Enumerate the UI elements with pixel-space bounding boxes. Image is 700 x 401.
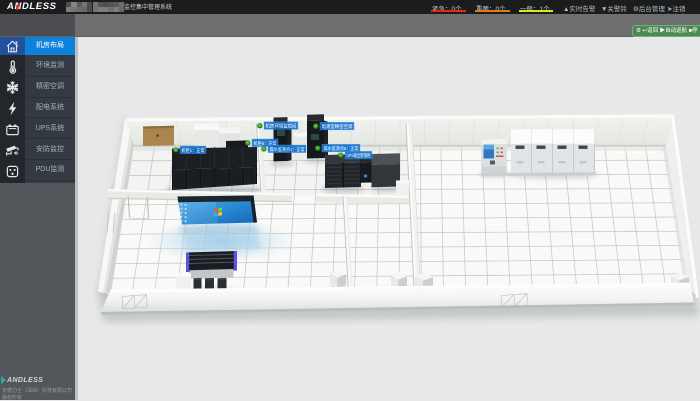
svg-text:UPS输出配电柜: UPS输出配电柜 bbox=[347, 152, 371, 159]
svg-text:机柜1：正常: 机柜1：正常 bbox=[182, 147, 205, 154]
svg-text:漏水监测点1：正常: 漏水监测点1：正常 bbox=[270, 146, 305, 153]
svg-text:漏水监测点8：正常: 漏水监测点8：正常 bbox=[324, 145, 359, 152]
svg-text:电源室精密空调: 电源室精密空调 bbox=[322, 123, 353, 130]
svg-text:机房环境监控间: 机房环境监控间 bbox=[266, 123, 297, 130]
